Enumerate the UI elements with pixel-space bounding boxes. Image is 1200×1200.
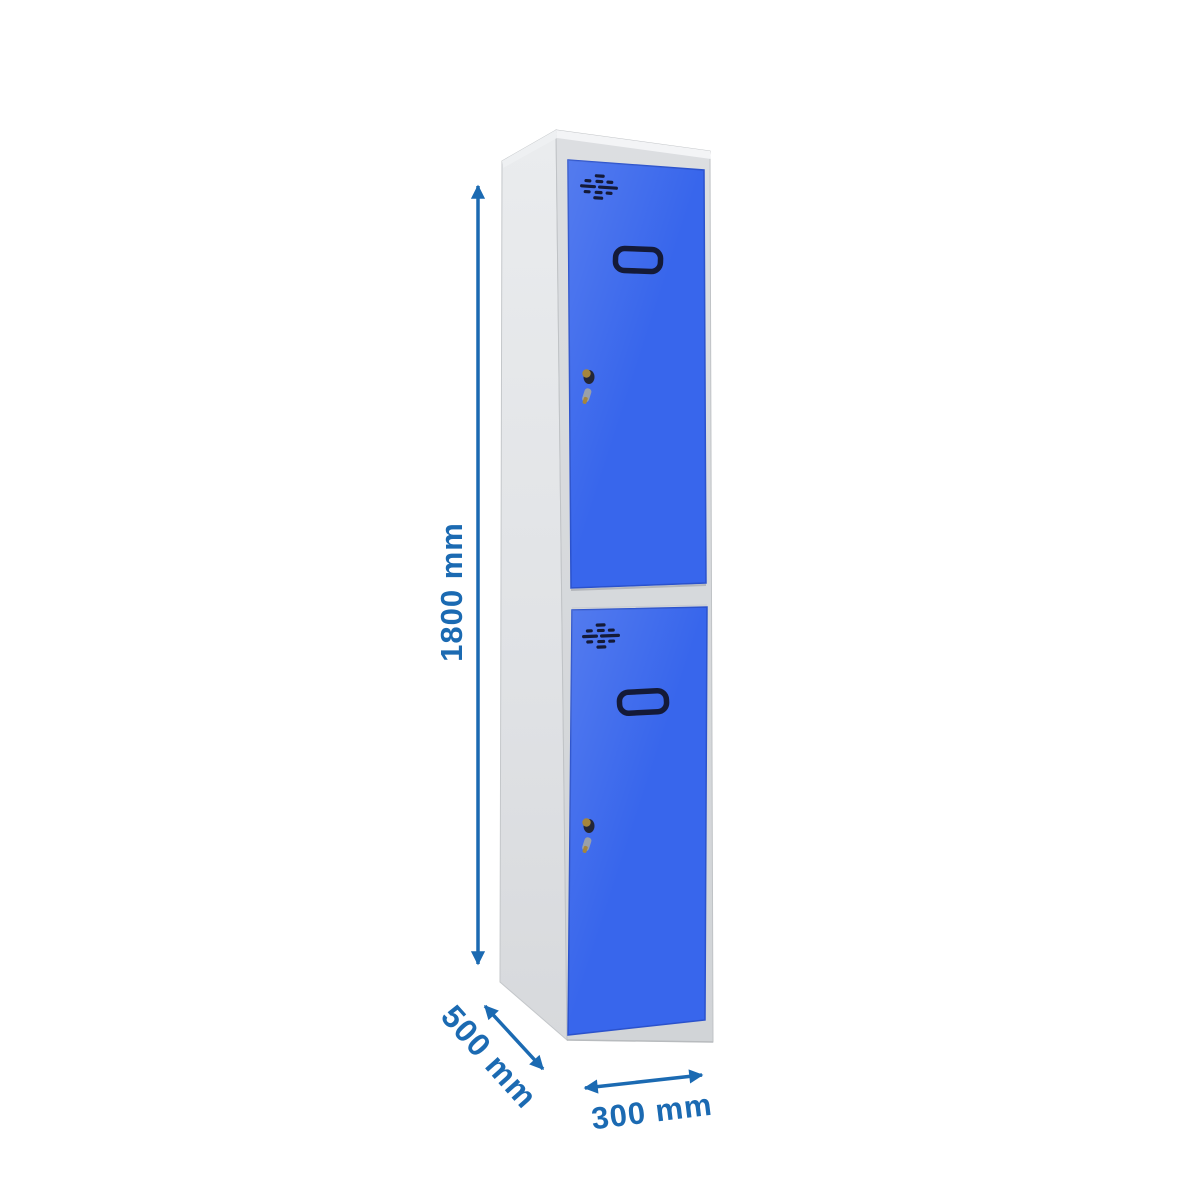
width-dimension-arrow (585, 1075, 702, 1088)
locker-side-panel (500, 130, 567, 1040)
locker-illustration (0, 0, 1200, 1200)
product-dimension-diagram: 1800 mm 500 mm 300 mm (0, 0, 1200, 1200)
height-dimension-label: 1800 mm (434, 522, 470, 662)
